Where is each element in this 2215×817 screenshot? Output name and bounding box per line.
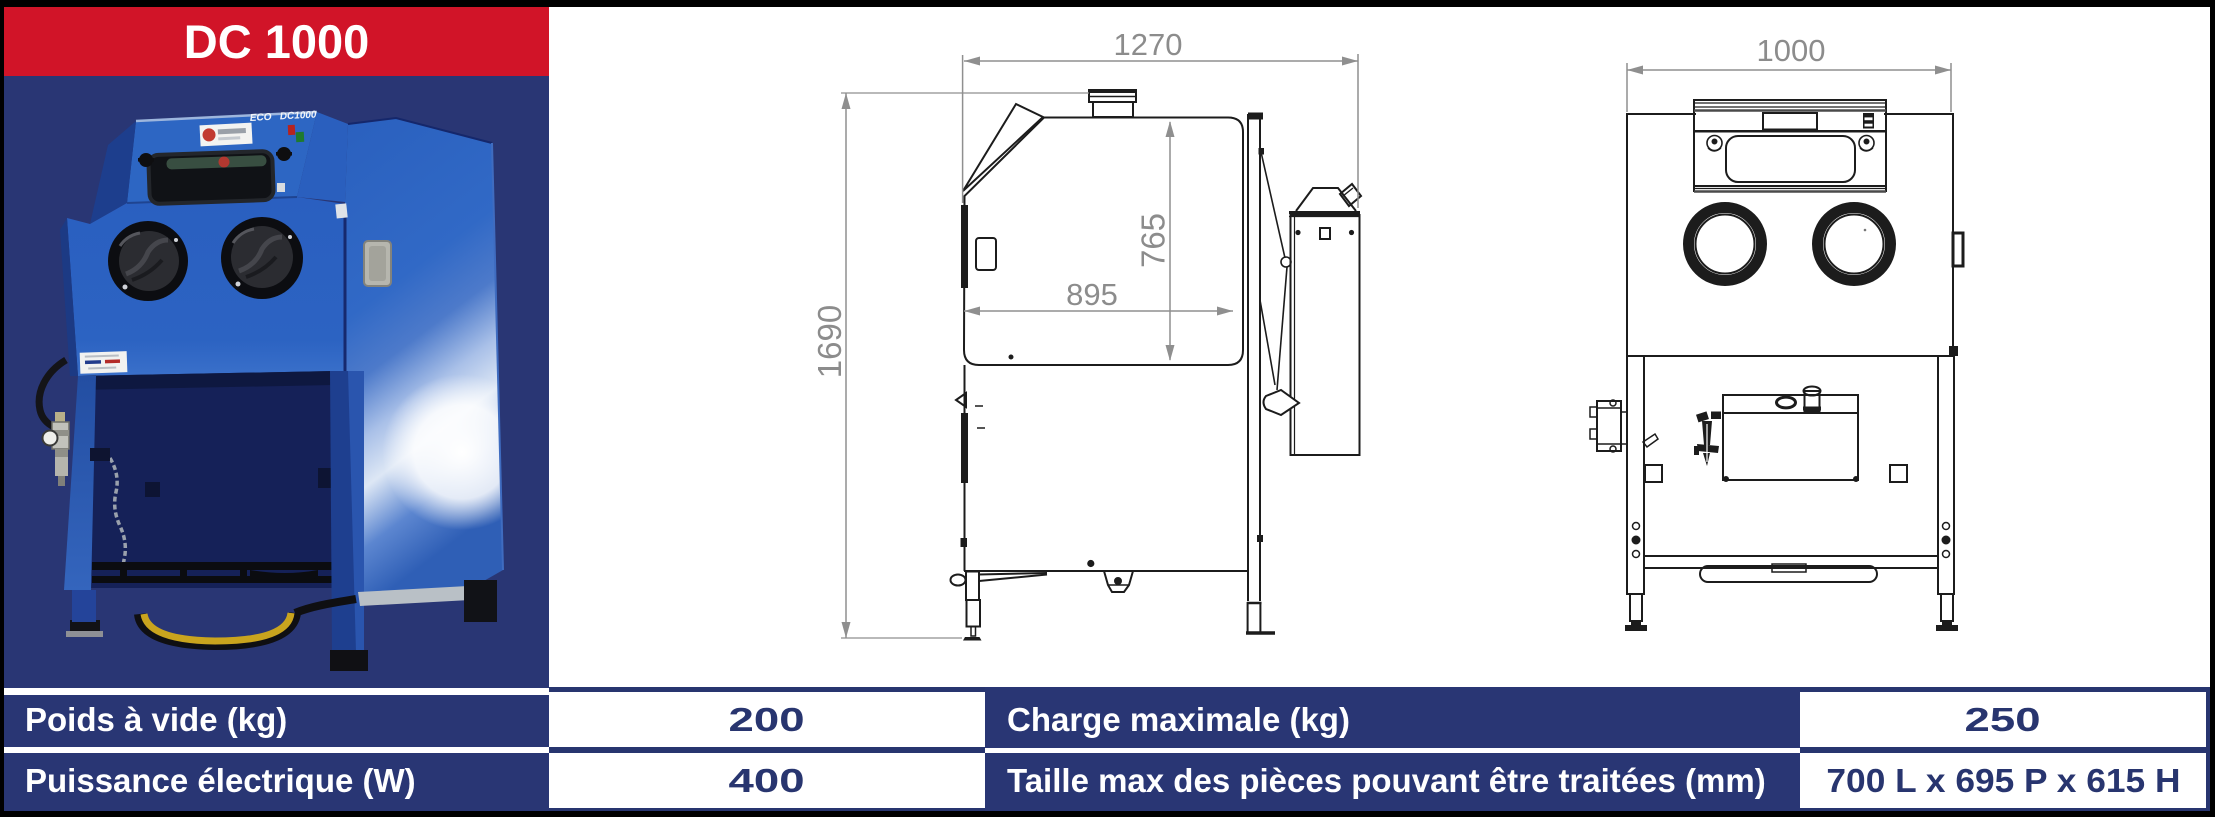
svg-text:765: 765 — [1135, 213, 1172, 268]
svg-text:1690: 1690 — [811, 305, 848, 378]
svg-text:895: 895 — [1066, 277, 1118, 312]
svg-text:1000: 1000 — [1757, 33, 1826, 68]
svg-text:1270: 1270 — [1114, 27, 1183, 62]
